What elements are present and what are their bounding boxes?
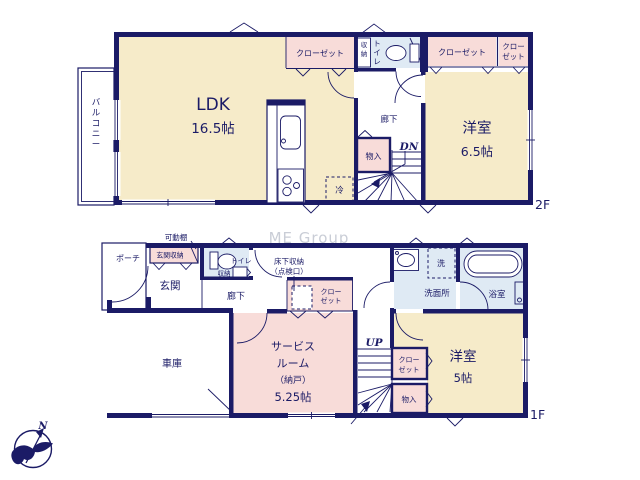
service-label-3: （納戸） bbox=[275, 374, 311, 386]
storage-small-2f-label: 物入 bbox=[366, 151, 382, 161]
closet-mid-label-2: ゼット bbox=[321, 296, 342, 305]
bedroom-1f-size-label: 5帖 bbox=[454, 371, 473, 385]
floor-plan-1f: 可動棚 ポーチ 玄関収納 玄関 トイレ 収納 廊下 床下収納 （点検口） クロー… bbox=[102, 232, 545, 426]
closet-top-label: クローゼット bbox=[296, 48, 344, 58]
stairs-dn-label: DN bbox=[399, 141, 419, 153]
closet-far-label-2: ゼット bbox=[502, 51, 525, 61]
washer-label: 洗 bbox=[437, 258, 445, 268]
toilet-v-label: トイレ bbox=[373, 39, 381, 66]
bedroom-1f-label: 洋室 bbox=[450, 348, 477, 365]
service-label-4: 5.25帖 bbox=[274, 390, 311, 404]
service-label-2: ルーム bbox=[277, 357, 310, 370]
hallway-1f-label: 廊下 bbox=[227, 290, 245, 302]
closet-right-label: クローゼット bbox=[438, 47, 486, 57]
storage-v-label: 収納 bbox=[361, 41, 368, 58]
bedroom-2f-label: 洋室 bbox=[463, 120, 492, 137]
ldk-label: LDK bbox=[196, 95, 231, 115]
ldk-size-label: 16.5帖 bbox=[191, 121, 235, 137]
kitchen-counter bbox=[267, 100, 305, 203]
floor-1f-label: 1F bbox=[530, 407, 545, 422]
closet-1f-label-2: ゼット bbox=[399, 365, 420, 374]
washroom-label: 洗面所 bbox=[424, 288, 450, 299]
storage-small-1f-label: 物入 bbox=[402, 394, 417, 404]
toilet-storage-label: 収納 bbox=[218, 269, 231, 278]
floor-plan-drawing: バルコニー LDK 16.5帖 クローゼット 収納 トイレ クローゼット クロー… bbox=[0, 0, 640, 480]
hallway-2f-label: 廊下 bbox=[380, 114, 398, 125]
bedroom-2f-size-label: 6.5帖 bbox=[461, 144, 493, 159]
washbasin-icon bbox=[394, 250, 419, 271]
closet-far-label-1: クロー bbox=[502, 42, 525, 51]
underfloor-label-2: （点検口） bbox=[270, 266, 308, 276]
shelf-label: 可動棚 bbox=[165, 232, 188, 242]
toilet-storage-box bbox=[233, 267, 247, 277]
closet-mid-label-1: クロー bbox=[321, 288, 342, 296]
garage-label: 車庫 bbox=[162, 357, 182, 370]
entrance-label: 玄関 bbox=[160, 279, 181, 292]
underfloor-storage-box bbox=[292, 286, 312, 309]
stairs-up-label: UP bbox=[365, 337, 383, 349]
compass: N bbox=[11, 421, 53, 468]
toilet-1f-label: トイレ bbox=[231, 257, 252, 265]
compass-north-label: N bbox=[37, 421, 48, 432]
service-label-1: サービス bbox=[271, 340, 315, 353]
balcony-label: バルコニー bbox=[92, 98, 101, 150]
floor-plan-2f: バルコニー LDK 16.5帖 クローゼット 収納 トイレ クローゼット クロー… bbox=[78, 23, 550, 213]
closet-1f-label-1: クロー bbox=[399, 356, 420, 364]
underfloor-label-1: 床下収納 bbox=[274, 256, 304, 266]
entrance-storage-label: 玄関収納 bbox=[156, 251, 183, 260]
floor-plan-page: バルコニー LDK 16.5帖 クローゼット 収納 トイレ クローゼット クロー… bbox=[0, 0, 640, 480]
bathroom-label: 浴室 bbox=[488, 289, 506, 300]
fridge-label: 冷 bbox=[335, 185, 344, 196]
porch-label: ポーチ bbox=[116, 254, 140, 263]
floor-2f-label: 2F bbox=[535, 197, 550, 212]
